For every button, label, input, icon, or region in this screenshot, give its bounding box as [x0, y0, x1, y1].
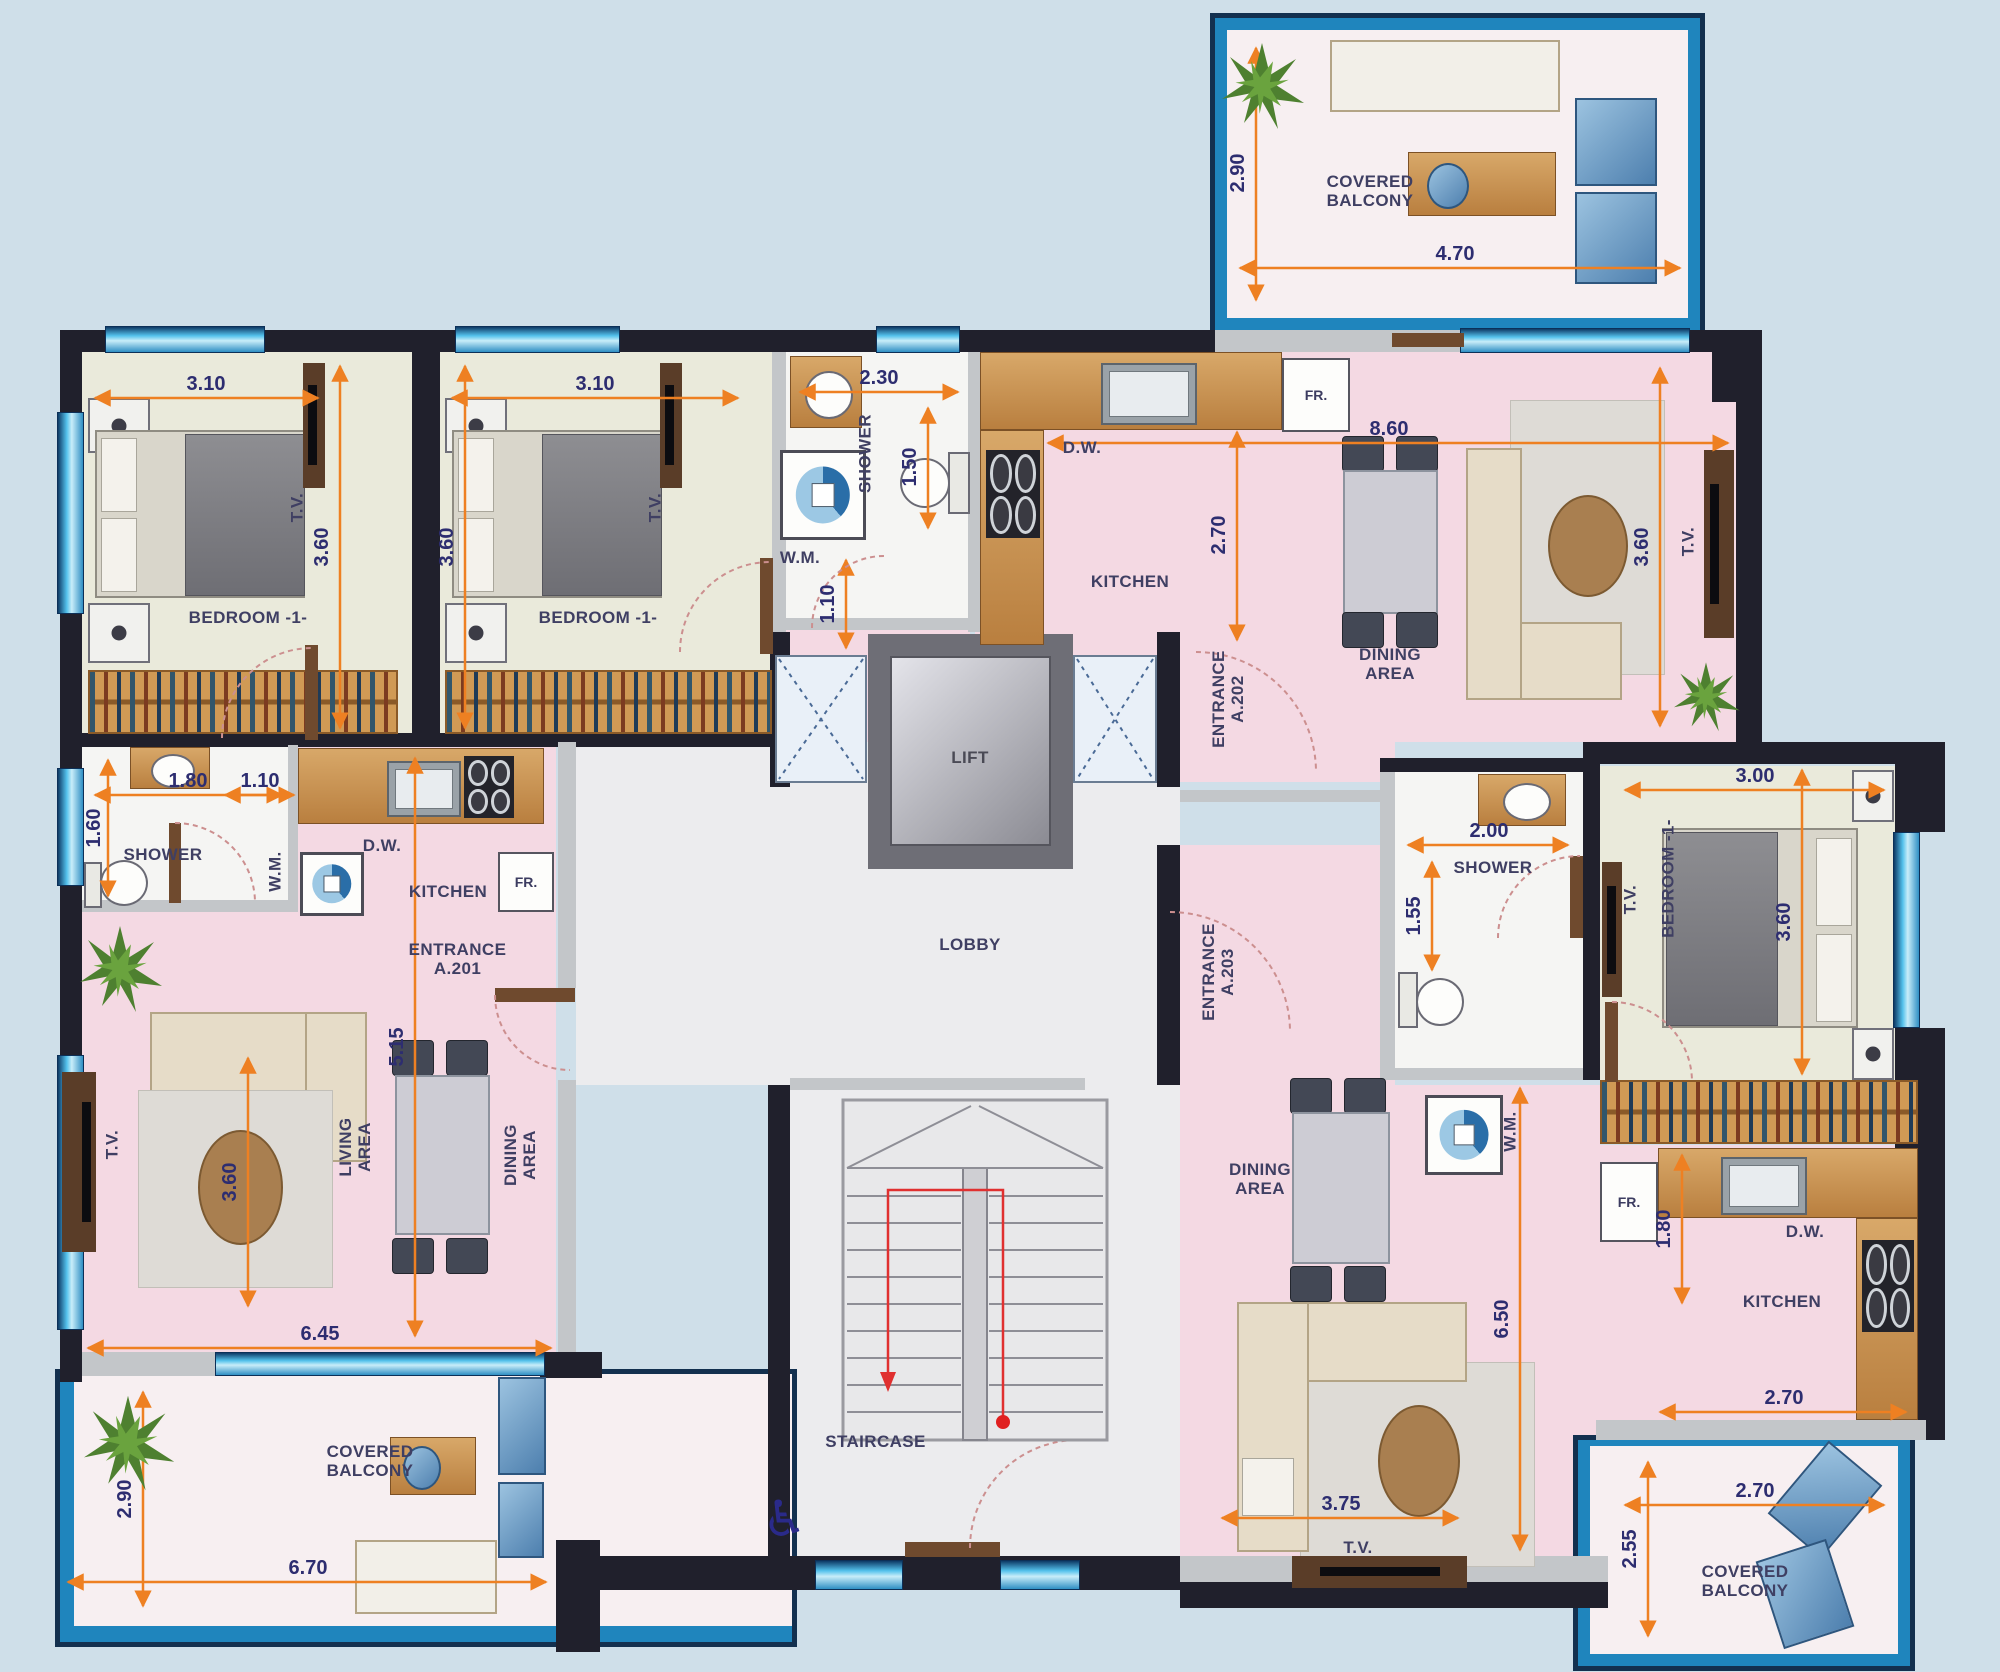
tv-label-bedroom3: T.V. — [1620, 878, 1639, 922]
room-label-kitchen-a203: KITCHEN — [1712, 1292, 1852, 1311]
dim-living-a201-h: 3.60 — [220, 1152, 240, 1212]
dim-balcony-tr-h: 4.70 — [1430, 244, 1480, 264]
dim-bed1-h: 3.60 — [312, 517, 332, 577]
dim-living-a202-h: 3.60 — [1632, 517, 1652, 577]
appliance-label-dw-a202: D.W. — [1052, 438, 1112, 457]
dim-balcony-tr-v: 2.90 — [1228, 143, 1248, 203]
room-label-dining-a203: DINING AREA — [1200, 1160, 1320, 1198]
dim-bed3-h: 3.60 — [1774, 892, 1794, 952]
wheelchair-icon: ♿ — [762, 1490, 807, 1548]
dim-a201-d: 5.15 — [387, 1017, 407, 1077]
dim-living-a201-w: 6.45 — [295, 1324, 345, 1344]
room-label-balcony-tr: COVERED BALCONY — [1305, 172, 1435, 210]
room-label-dining-a201: DINING AREA — [501, 1095, 539, 1215]
room-label-balcony-bl: COVERED BALCONY — [305, 1442, 435, 1480]
room-label-entrance-a202: ENTRANCE A.202 — [1209, 639, 1247, 759]
room-label-living-a201: LIVING AREA — [336, 1087, 374, 1207]
room-label-dining-a202: DINING AREA — [1330, 645, 1450, 683]
floor-plan: FR. FR. FR. — [0, 0, 2000, 1672]
tv-label-living-a202: T.V. — [1678, 520, 1697, 564]
appliance-label-dw-a203: D.W. — [1775, 1222, 1835, 1241]
room-label-shower-a203: SHOWER — [1428, 858, 1558, 877]
dim-living-a203-w: 3.75 — [1316, 1494, 1366, 1514]
tv-label-living-a203: T.V. — [1330, 1538, 1386, 1557]
dim-shower-a201-h: 1.60 — [84, 798, 104, 858]
room-label-lobby: LOBBY — [930, 935, 1010, 954]
dim-bed2-h: 3.60 — [437, 517, 457, 577]
room-label-shower-a201: SHOWER — [108, 845, 218, 864]
appliance-label-wm-a201: W.M. — [265, 837, 284, 907]
dim-shower-a201-w: 1.80 — [163, 771, 213, 791]
dim-shower-a202-h: 1.50 — [900, 437, 920, 497]
room-label-bedroom2: BEDROOM -1- — [508, 608, 688, 627]
dim-bed3-w: 3.00 — [1730, 766, 1780, 786]
staircase-drawing — [843, 1100, 1107, 1440]
appliance-label-dw-a201: D.W. — [352, 836, 412, 855]
room-label-entrance-a201: ENTRANCE A.201 — [400, 940, 515, 978]
room-label-staircase: STAIRCASE — [808, 1432, 943, 1451]
dim-kitchen-a202-d: 2.70 — [1209, 505, 1229, 565]
dim-balcony-br-w: 2.70 — [1730, 1481, 1780, 1501]
dim-hall-a201: 1.10 — [235, 771, 285, 791]
appliance-label-wm-a202: W.M. — [770, 548, 830, 567]
dim-bed2-w: 3.10 — [570, 374, 620, 394]
tv-label-bedroom2: T.V. — [645, 486, 664, 530]
dim-balcony-bl-w: 6.70 — [283, 1558, 333, 1578]
dim-balcony-br-h: 2.55 — [1620, 1519, 1640, 1579]
dim-hall-a202: 1.10 — [818, 574, 838, 634]
plan-linework — [0, 0, 2000, 1672]
dim-balcony-bl-v: 2.90 — [115, 1469, 135, 1529]
room-label-balcony-br: COVERED BALCONY — [1680, 1562, 1810, 1600]
room-label-lift: LIFT — [935, 748, 1005, 767]
room-label-kitchen-a202: KITCHEN — [1060, 572, 1200, 591]
tv-label-living-a201: T.V. — [102, 1123, 121, 1167]
room-label-entrance-a203: ENTRANCE A.203 — [1199, 912, 1237, 1032]
dim-shower-a203-w: 2.00 — [1464, 821, 1514, 841]
dim-a202-w: 8.60 — [1364, 419, 1414, 439]
dim-kitchen-a203-w: 2.70 — [1759, 1388, 1809, 1408]
appliance-label-wm-a203: W.M. — [1500, 1097, 1519, 1167]
dim-shower-a203-h: 1.55 — [1404, 886, 1424, 946]
room-label-bedroom1: BEDROOM -1- — [158, 608, 338, 627]
room-label-kitchen-a201: KITCHEN — [378, 882, 518, 901]
dim-shower-a202-w: 2.30 — [854, 368, 904, 388]
room-label-bedroom3: BEDROOM -1- — [1658, 789, 1677, 969]
tv-label-bedroom1: T.V. — [287, 486, 306, 530]
dim-bed1-w: 3.10 — [181, 374, 231, 394]
dim-a203-d: 6.50 — [1492, 1289, 1512, 1349]
room-label-shower-a202: SHOWER — [855, 399, 874, 509]
dim-kitchen-a203-d: 1.80 — [1654, 1199, 1674, 1259]
